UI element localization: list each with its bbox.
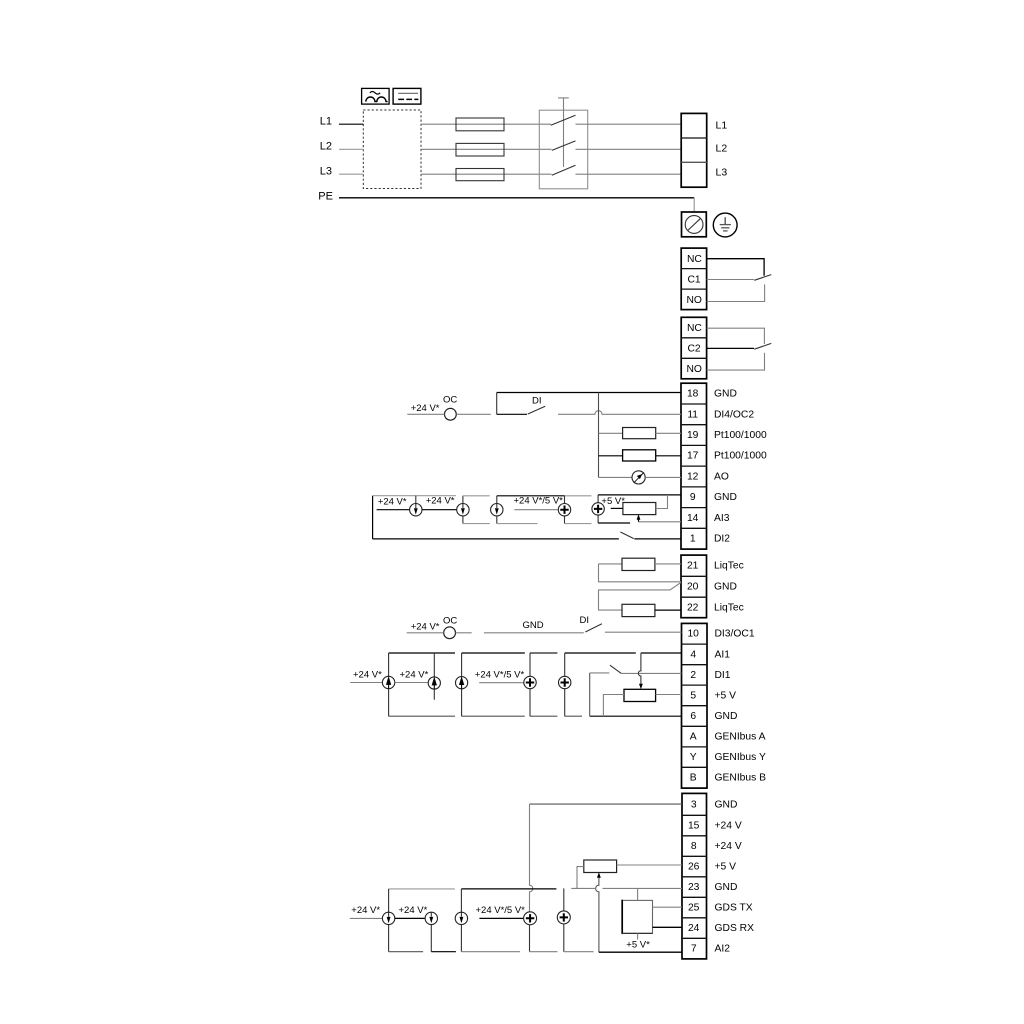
svg-text:15: 15	[688, 821, 700, 832]
svg-text:18: 18	[687, 389, 699, 400]
svg-text:NC: NC	[687, 323, 702, 334]
svg-text:3: 3	[691, 799, 697, 810]
svg-text:DI: DI	[532, 396, 542, 407]
svg-text:+5 V: +5 V	[715, 862, 737, 873]
svg-text:+24 V*: +24 V*	[411, 622, 440, 633]
svg-text:5: 5	[690, 690, 696, 701]
svg-text:Pt100/1000: Pt100/1000	[714, 451, 767, 462]
svg-text:17: 17	[687, 451, 699, 462]
svg-text:GND: GND	[523, 620, 544, 631]
svg-text:11: 11	[687, 409, 698, 420]
svg-text:21: 21	[687, 561, 699, 572]
svg-text:+24 V*: +24 V*	[353, 670, 382, 681]
svg-text:19: 19	[687, 430, 699, 441]
svg-text:DI4/OC2: DI4/OC2	[714, 409, 754, 420]
svg-text:GENIbus B: GENIbus B	[715, 773, 767, 784]
svg-text:22: 22	[687, 602, 699, 613]
svg-text:Pt100/1000: Pt100/1000	[714, 430, 767, 441]
svg-text:+5 V*: +5 V*	[601, 496, 625, 507]
svg-text:NO: NO	[687, 364, 702, 375]
svg-text:AO: AO	[714, 471, 729, 482]
svg-text:1: 1	[690, 534, 696, 545]
svg-text:DI: DI	[580, 615, 590, 626]
svg-text:GND: GND	[715, 711, 738, 722]
svg-text:9: 9	[690, 492, 696, 503]
svg-text:23: 23	[688, 882, 700, 893]
svg-text:GND: GND	[714, 492, 737, 503]
svg-text:+24 V*: +24 V*	[400, 670, 429, 681]
svg-text:GND: GND	[714, 389, 737, 400]
svg-text:+24 V*: +24 V*	[378, 496, 407, 507]
svg-text:12: 12	[687, 471, 699, 482]
svg-text:20: 20	[687, 582, 699, 593]
svg-text:NO: NO	[687, 295, 702, 306]
svg-text:GND: GND	[715, 799, 738, 810]
svg-text:L2: L2	[320, 141, 332, 153]
svg-text:GDS TX: GDS TX	[715, 903, 753, 914]
svg-text:L3: L3	[716, 166, 728, 178]
svg-text:LiqTec: LiqTec	[714, 561, 744, 572]
svg-text:+24 V*: +24 V*	[351, 905, 380, 916]
svg-text:+24 V*/5 V*: +24 V*/5 V*	[476, 905, 526, 916]
svg-text:DI3/OC1: DI3/OC1	[715, 629, 755, 640]
svg-text:+24 V*: +24 V*	[426, 496, 455, 507]
svg-text:+24 V: +24 V	[715, 821, 742, 832]
svg-text:+24 V*: +24 V*	[411, 403, 440, 414]
svg-text:DI1: DI1	[715, 670, 731, 681]
svg-text:B: B	[690, 773, 697, 784]
svg-text:+5 V: +5 V	[715, 690, 737, 701]
svg-text:6: 6	[690, 711, 696, 722]
svg-text:10: 10	[687, 629, 699, 640]
svg-text:+5 V*: +5 V*	[626, 939, 650, 950]
svg-text:GDS RX: GDS RX	[715, 923, 755, 934]
svg-text:GND: GND	[714, 582, 737, 593]
svg-text:NC: NC	[687, 254, 702, 265]
svg-text:8: 8	[691, 841, 697, 852]
svg-text:L1: L1	[716, 119, 728, 131]
svg-text:OC: OC	[443, 616, 457, 627]
svg-text:+24 V*/5 V*: +24 V*/5 V*	[475, 670, 525, 681]
svg-text:GENIbus Y: GENIbus Y	[715, 752, 766, 763]
svg-text:L1: L1	[320, 116, 332, 128]
svg-text:14: 14	[687, 513, 699, 524]
svg-text:GND: GND	[715, 882, 738, 893]
svg-text:+24 V: +24 V	[715, 841, 742, 852]
svg-text:4: 4	[690, 649, 696, 660]
svg-text:GENIbus A: GENIbus A	[715, 732, 766, 743]
svg-text:+24 V*: +24 V*	[399, 905, 428, 916]
svg-text:A: A	[690, 732, 697, 743]
svg-text:OC: OC	[443, 395, 457, 406]
svg-text:+24 V*/5 V*: +24 V*/5 V*	[514, 496, 564, 507]
svg-text:LiqTec: LiqTec	[714, 602, 744, 613]
svg-text:AI3: AI3	[714, 513, 730, 524]
svg-text:DI2: DI2	[714, 534, 730, 545]
svg-text:Y: Y	[690, 752, 697, 763]
svg-text:C1: C1	[688, 274, 701, 285]
svg-text:24: 24	[688, 923, 700, 934]
svg-text:L3: L3	[320, 166, 332, 178]
svg-text:AI2: AI2	[715, 944, 731, 955]
svg-text:L2: L2	[716, 143, 728, 155]
svg-text:AI1: AI1	[715, 649, 731, 660]
svg-text:C2: C2	[688, 344, 701, 355]
svg-text:PE: PE	[318, 191, 333, 203]
svg-text:25: 25	[688, 903, 700, 914]
svg-text:2: 2	[690, 670, 696, 681]
svg-text:7: 7	[691, 944, 697, 955]
svg-text:26: 26	[688, 862, 700, 873]
